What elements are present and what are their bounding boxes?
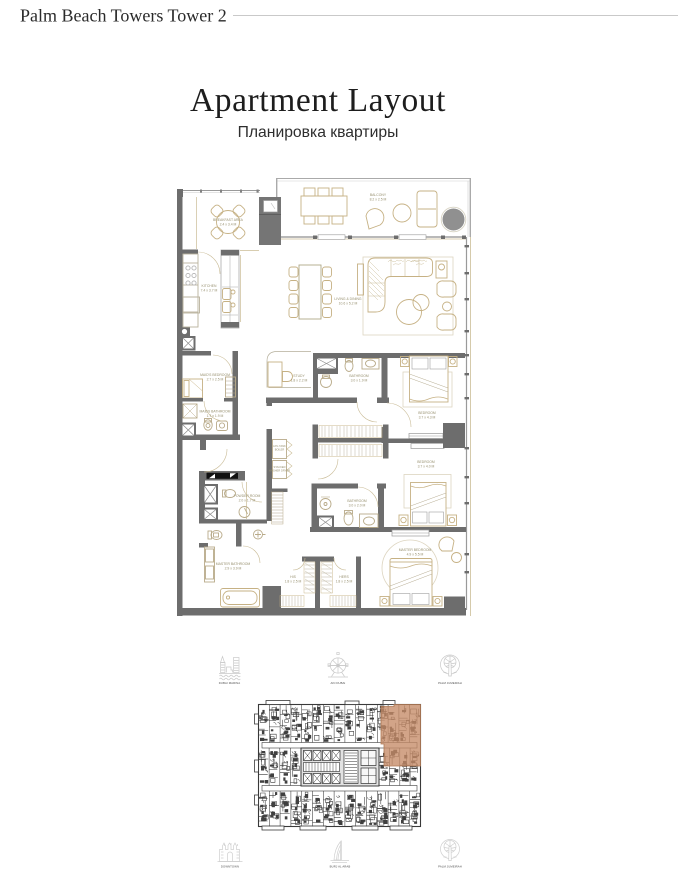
svg-text:1.8 x 2.2 M: 1.8 x 2.2 M: [291, 379, 308, 383]
svg-text:2.7 x 2.5 M: 2.7 x 2.5 M: [207, 378, 224, 382]
svg-text:Palm Beach Towers Tower 2: Palm Beach Towers Tower 2: [20, 6, 227, 26]
svg-text:POWDER ROOM: POWDER ROOM: [234, 494, 261, 498]
svg-text:4.9 x 5.5 M: 4.9 x 5.5 M: [407, 553, 424, 557]
svg-text:BURJ AL ARAB: BURJ AL ARAB: [330, 865, 351, 869]
svg-text:PALM JUMEIRAH: PALM JUMEIRAH: [438, 681, 462, 685]
svg-text:3.7 x 4.0 M: 3.7 x 4.0 M: [418, 465, 435, 469]
svg-text:10.6 x 5.2 M: 10.6 x 5.2 M: [339, 302, 358, 306]
svg-text:DUBAI MARINA: DUBAI MARINA: [219, 681, 240, 685]
svg-text:MASTER BATHROOM: MASTER BATHROOM: [216, 562, 251, 566]
svg-text:LPG TANK: LPG TANK: [273, 444, 286, 448]
svg-text:PALM JUMEIRAH: PALM JUMEIRAH: [438, 865, 462, 869]
svg-text:AIN DUBAI: AIN DUBAI: [331, 681, 346, 685]
svg-text:3.0 x 2.0 M: 3.0 x 2.0 M: [349, 504, 366, 508]
svg-text:2.0 x 1.7 M: 2.0 x 1.7 M: [239, 499, 256, 503]
svg-text:LIVING & DINING: LIVING & DINING: [334, 297, 361, 301]
svg-text:BREAKFAST AREA: BREAKFAST AREA: [213, 218, 244, 222]
svg-text:BALCONY: BALCONY: [370, 193, 387, 197]
svg-text:3.7 x 4.3 M: 3.7 x 4.3 M: [419, 416, 436, 420]
svg-text:MAID'S BEDROOM: MAID'S BEDROOM: [200, 373, 230, 377]
svg-text:1.8 x 2.5 M: 1.8 x 2.5 M: [285, 580, 302, 584]
svg-text:7.4 x 3.7 M: 7.4 x 3.7 M: [201, 289, 218, 293]
svg-text:BATHROOM: BATHROOM: [347, 499, 367, 503]
svg-text:1.8 x 2.5 M: 1.8 x 2.5 M: [336, 580, 353, 584]
svg-text:3.0 x 1.9 M: 3.0 x 1.9 M: [351, 379, 368, 383]
svg-text:STUDY: STUDY: [293, 374, 305, 378]
svg-text:MASTER BEDROOM: MASTER BEDROOM: [399, 548, 432, 552]
svg-text:Планировка квартиры: Планировка квартиры: [238, 124, 399, 141]
svg-text:Apartment Layout: Apartment Layout: [190, 82, 446, 119]
svg-text:DOWNTOWN: DOWNTOWN: [221, 865, 239, 869]
svg-text:2.9 x 3.9 M: 2.9 x 3.9 M: [225, 567, 242, 571]
svg-text:STACKED: STACKED: [273, 465, 285, 469]
svg-text:1.7 x 1.9 M: 1.7 x 1.9 M: [207, 414, 224, 418]
svg-text:BOILER: BOILER: [275, 447, 285, 451]
svg-text:HERS: HERS: [339, 575, 349, 579]
svg-text:MAIDS BATHROOM: MAIDS BATHROOM: [199, 410, 230, 414]
svg-text:WASHER DRYER: WASHER DRYER: [269, 468, 290, 472]
svg-text:8.2 x 2.5 M: 8.2 x 2.5 M: [370, 198, 387, 202]
svg-text:BATHROOM: BATHROOM: [349, 374, 369, 378]
svg-text:KITCHEN: KITCHEN: [202, 284, 217, 288]
svg-text:BEDROOM: BEDROOM: [418, 411, 436, 415]
svg-text:HIS: HIS: [290, 575, 296, 579]
svg-text:BEDROOM: BEDROOM: [417, 460, 435, 464]
svg-text:2.4 x 3.4 M: 2.4 x 3.4 M: [220, 223, 237, 227]
